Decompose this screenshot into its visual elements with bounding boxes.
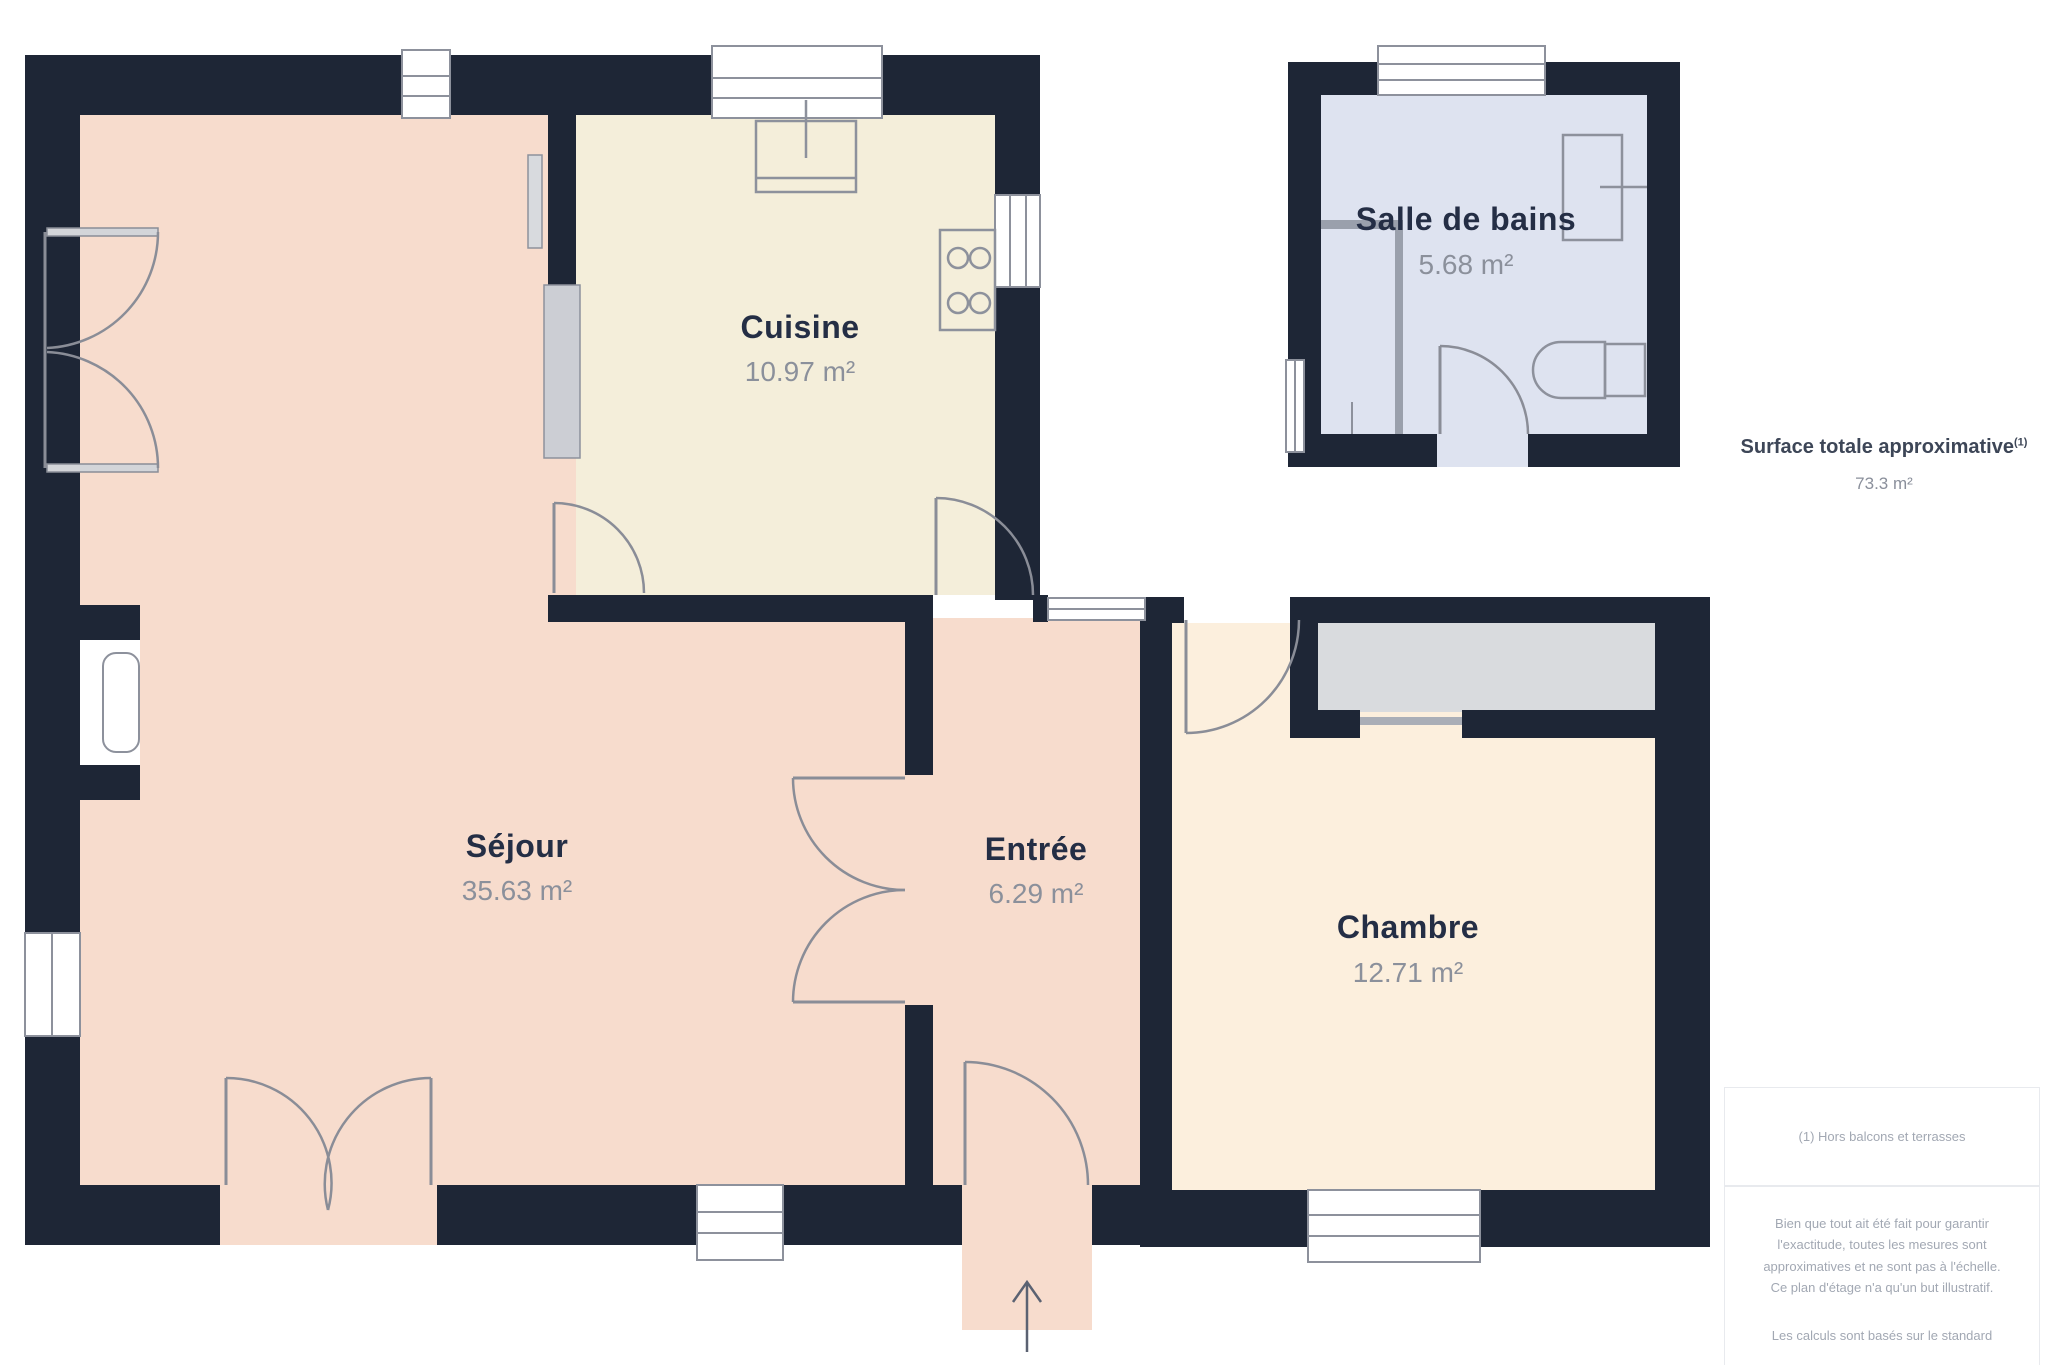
main-bottom-wall-seg3 — [783, 1185, 962, 1245]
room-area-cuisine: 10.97 m² — [745, 356, 856, 387]
closet-bottom-wall-left — [1318, 710, 1360, 738]
chambre-bottom-wall-seg1 — [1140, 1190, 1308, 1247]
kitchen-bottom-wall — [548, 595, 905, 622]
bathroom-top-window — [1378, 46, 1545, 95]
floor-plan-page: Séjour 35.63 m² Cuisine 10.97 m² Entrée … — [0, 0, 2048, 1365]
sejour-bottom-window — [697, 1185, 783, 1260]
entree-top-window-band — [1048, 598, 1145, 620]
bathroom-door-threshold — [1437, 434, 1528, 467]
room-area-salle-de-bains: 5.68 m² — [1419, 249, 1514, 280]
sejour-top-wall-window — [402, 50, 450, 118]
kitchen-top-window — [712, 46, 882, 118]
disclaimer-paragraph-2: Les calculs sont basés sur le standard — [1759, 1325, 2005, 1346]
room-name-chambre: Chambre — [1337, 909, 1479, 945]
total-surface-value: 73.3 m² — [1726, 474, 2042, 494]
footnote-box: (1) Hors balcons et terrasses — [1724, 1087, 2040, 1186]
chambre-closet-left-jamb — [1290, 597, 1318, 738]
sejour-bottom-door-threshold — [220, 1185, 437, 1245]
radiator-symbol — [528, 155, 542, 248]
floors — [45, 95, 1655, 1330]
footnote-marker: (1) — [2014, 436, 2027, 448]
kitchen-sliding-panel — [544, 285, 580, 458]
closet-sliding-door — [1360, 717, 1462, 725]
chambre-top-wall-left-stub — [1172, 597, 1184, 623]
footnote-text: (1) Hors balcons et terrasses — [1799, 1129, 1966, 1144]
cuisine-floor — [576, 115, 995, 595]
bathroom-left-window — [1286, 360, 1304, 452]
total-surface-label: Surface totale approximative(1) — [1726, 436, 2042, 459]
entree-chambre-wall — [1140, 597, 1172, 1190]
main-bottom-wall-seg1 — [25, 1185, 220, 1245]
kitchen-door-right-jamb — [1033, 595, 1048, 622]
chambre-bottom-window — [1308, 1190, 1480, 1262]
room-name-entree: Entrée — [985, 831, 1088, 867]
left-wall-niche-inset — [80, 640, 140, 765]
disclaimer-box: Bien que tout ait été fait pour garantir… — [1724, 1186, 2040, 1365]
room-name-sejour: Séjour — [466, 828, 569, 864]
bath-right-wall — [1647, 62, 1680, 467]
room-name-salle-de-bains: Salle de bains — [1356, 201, 1576, 237]
kitchen-left-opening-floor — [548, 458, 576, 595]
kitchen-right-window — [995, 195, 1040, 287]
chambre-bottom-wall-seg2 — [1480, 1190, 1710, 1247]
sejour-entree-wall-upper — [905, 595, 933, 775]
room-area-sejour: 35.63 m² — [462, 875, 573, 906]
main-bottom-wall-seg2 — [437, 1185, 697, 1245]
closet-bottom-wall-right — [1462, 710, 1655, 738]
kitchen-left-wall — [548, 115, 576, 285]
room-area-chambre: 12.71 m² — [1353, 957, 1464, 988]
sejour-entree-wall-lower — [905, 1005, 933, 1185]
bath-bottom-wall-seg2 — [1528, 434, 1680, 467]
kitchen-right-wall — [995, 55, 1040, 600]
main-top-wall — [25, 55, 1040, 115]
chambre-top-wall-over-closet — [1318, 597, 1710, 623]
sejour-entree-opening-floor — [905, 775, 933, 1005]
total-surface-label-text: Surface totale approximative — [1741, 436, 2014, 458]
disclaimer-paragraph-1: Bien que tout ait été fait pour garantir… — [1759, 1213, 2005, 1299]
room-name-cuisine: Cuisine — [740, 309, 859, 345]
room-area-entree: 6.29 m² — [989, 878, 1084, 909]
chambre-closet-floor — [1318, 623, 1655, 712]
chambre-right-wall — [1655, 597, 1710, 1247]
bath-bottom-wall-seg1 — [1288, 434, 1437, 467]
sejour-left-window — [25, 933, 80, 1036]
